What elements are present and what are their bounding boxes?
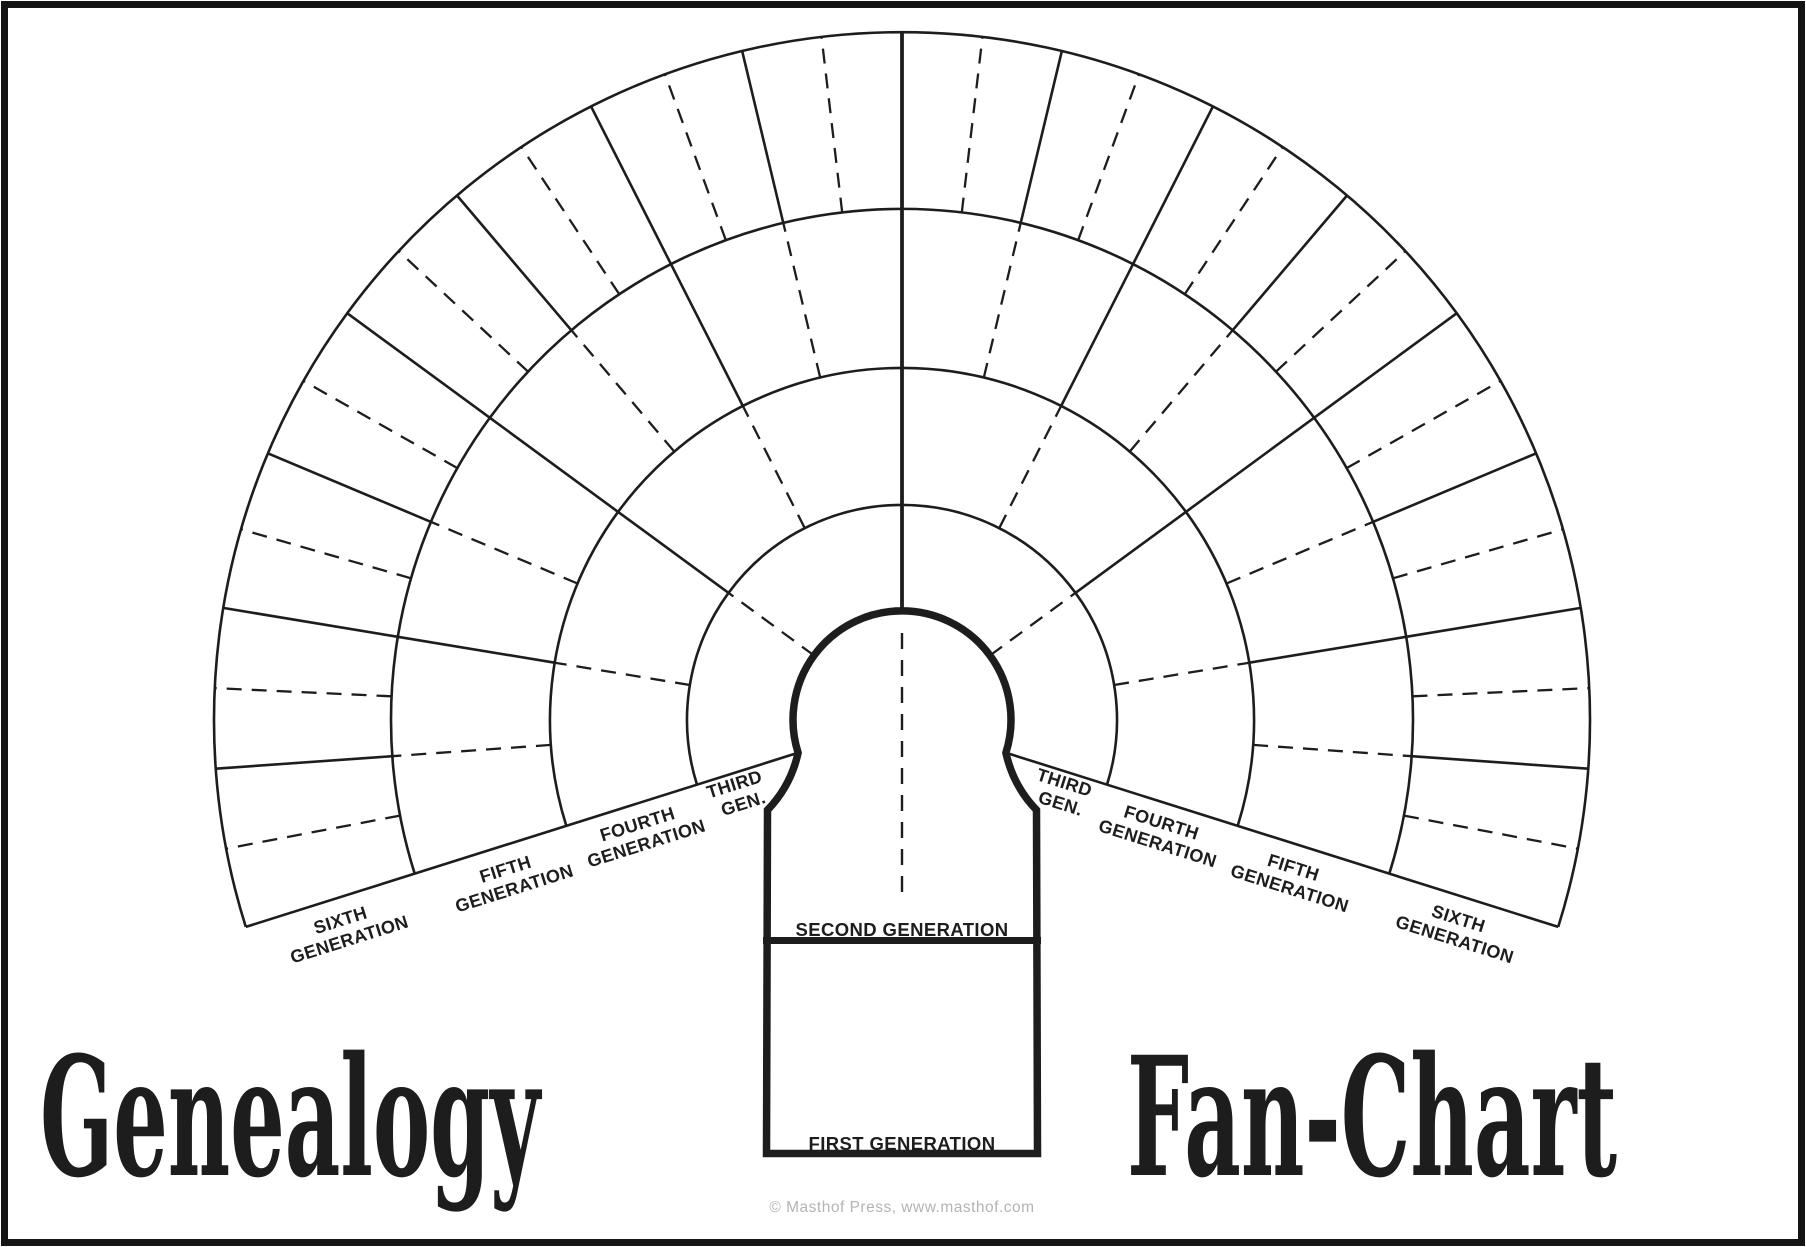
title-genealogy: Genealogy (40, 1020, 542, 1214)
ring-label-sixth-left: SIXTH GENERATION (281, 891, 410, 967)
genealogy-fan-chart-page: SECOND GENERATION FIRST GENERATION THIRD… (0, 0, 1806, 1247)
copyright-text: © Masthof Press, www.masthof.com (769, 1199, 1034, 1216)
fan-chart-svg: SECOND GENERATION FIRST GENERATION THIRD… (0, 0, 1806, 1247)
ring-label-fourth-right: FOURTH GENERATION (1096, 795, 1225, 871)
title-fan-chart: Fan-Chart (1127, 1020, 1617, 1214)
ring-label-sixth-right: SIXTH GENERATION (1393, 891, 1522, 967)
fan-radial-lines (215, 32, 1590, 927)
ring-label-fifth-left: FIFTH GENERATION (446, 840, 575, 916)
ring-label-fifth-right: FIFTH GENERATION (1228, 840, 1357, 916)
ring-label-fourth-left: FOURTH GENERATION (578, 795, 707, 871)
first-generation-label: FIRST GENERATION (809, 1133, 996, 1154)
second-generation-label: SECOND GENERATION (795, 919, 1008, 940)
